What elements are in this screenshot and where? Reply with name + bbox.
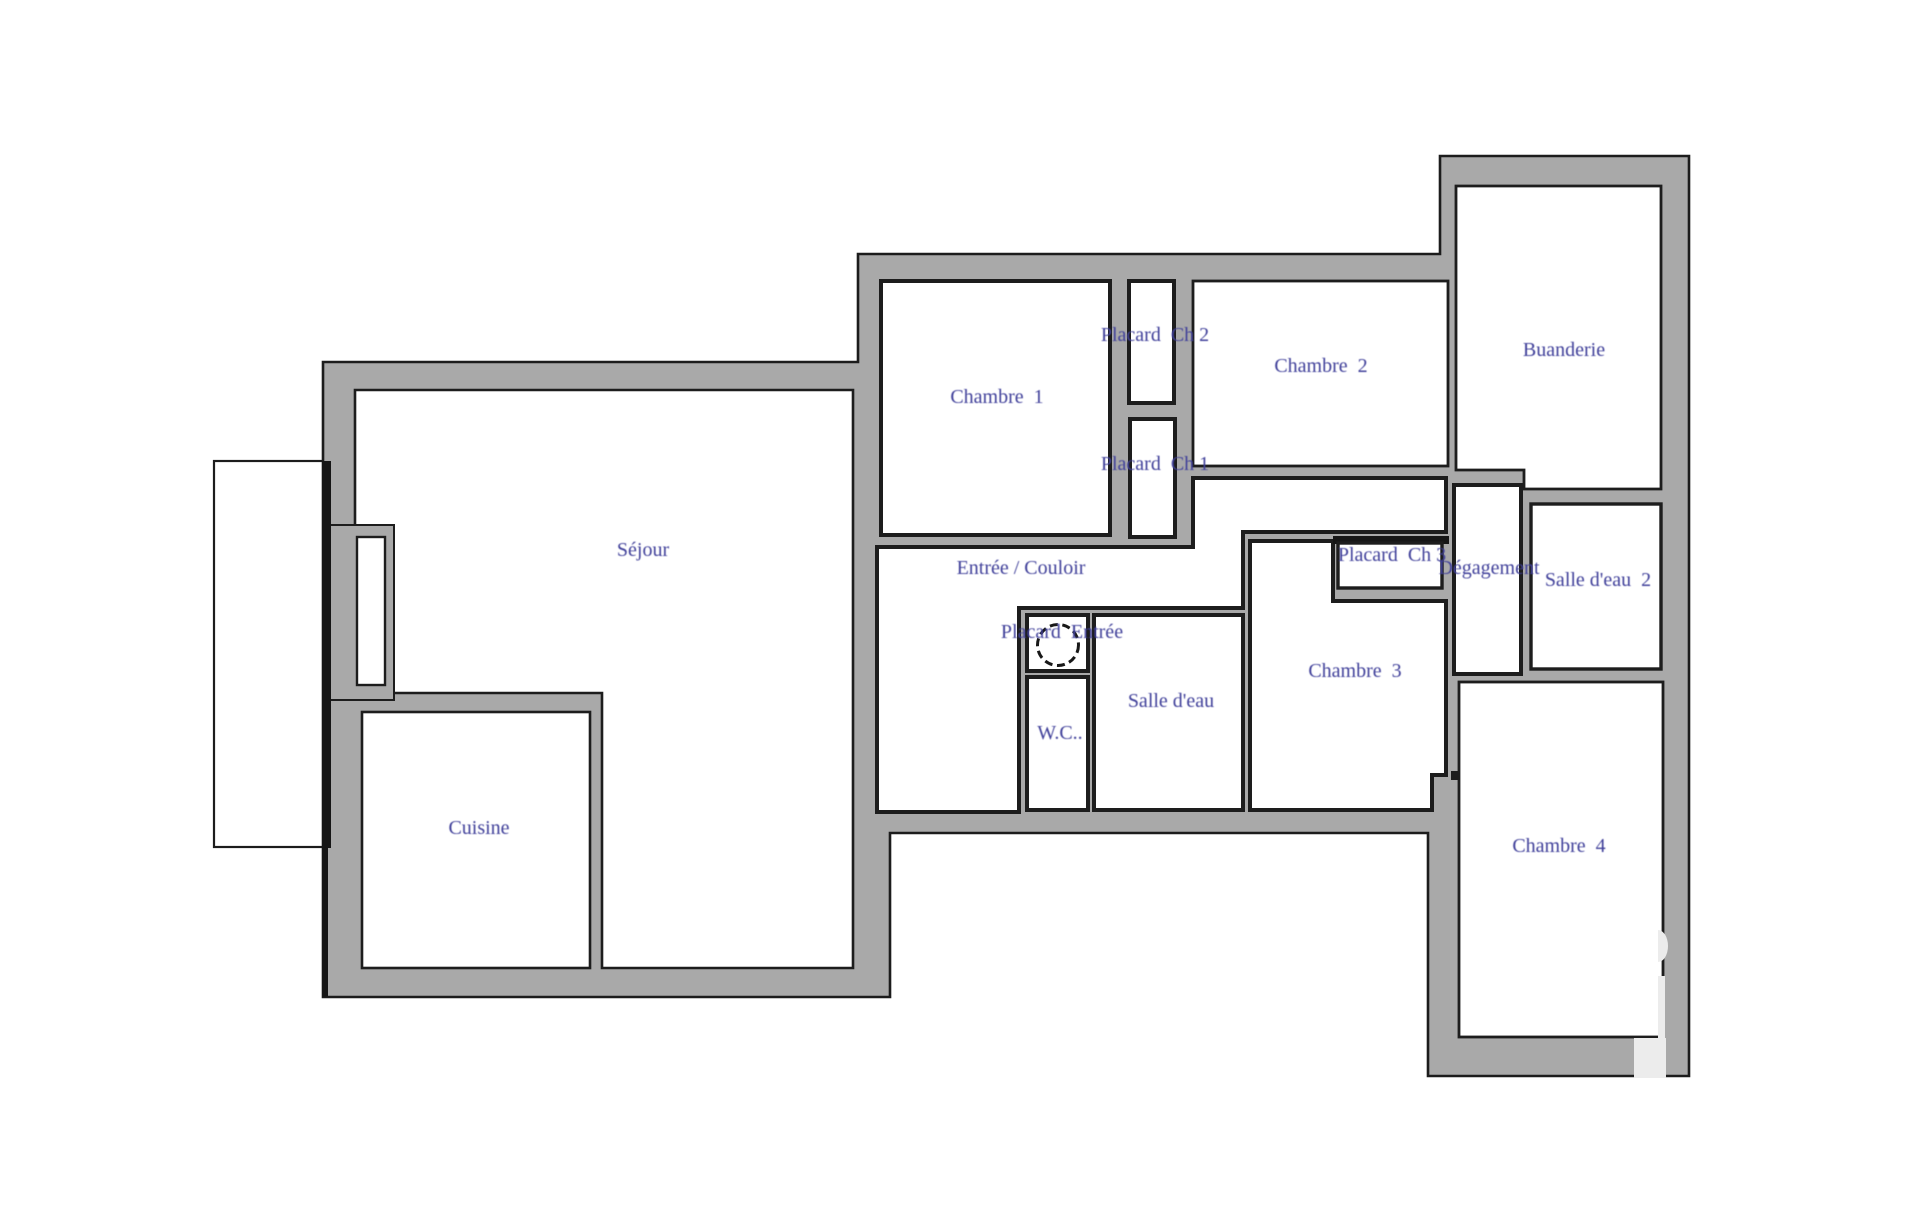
svg-text:W.C..: W.C.. — [1037, 722, 1082, 744]
svg-text:Chambre 1: Chambre 1 — [950, 386, 1043, 408]
svg-text:Salle d'eau 2: Salle d'eau 2 — [1545, 569, 1651, 591]
svg-text:Cuisine: Cuisine — [448, 817, 509, 839]
svg-text:Entrée / Couloir: Entrée / Couloir — [957, 557, 1086, 579]
svg-text:Placard Ch 2: Placard Ch 2 — [1101, 324, 1209, 346]
svg-text:Buanderie: Buanderie — [1523, 339, 1605, 361]
svg-text:Chambre 2: Chambre 2 — [1274, 355, 1367, 377]
svg-text:Salle d'eau: Salle d'eau — [1128, 690, 1214, 712]
svg-text:Placard Ch 1: Placard Ch 1 — [1101, 453, 1209, 475]
svg-text:Chambre 3: Chambre 3 — [1308, 660, 1401, 682]
svg-text:Chambre 4: Chambre 4 — [1512, 835, 1605, 857]
svg-text:Séjour: Séjour — [617, 539, 670, 561]
svg-text:Dégagement: Dégagement — [1438, 557, 1540, 579]
svg-text:Placard Ch 3: Placard Ch 3 — [1338, 544, 1446, 566]
svg-text:Placard Entrée: Placard Entrée — [1001, 621, 1123, 643]
